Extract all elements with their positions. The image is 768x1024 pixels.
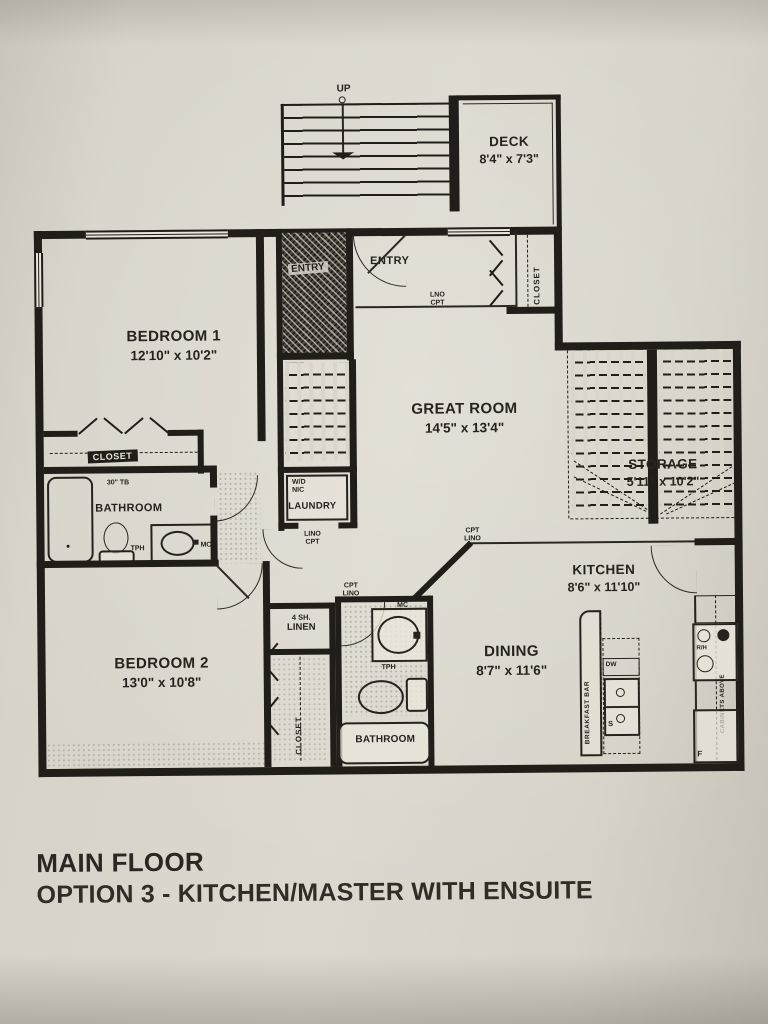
closet-side-line <box>515 231 518 311</box>
bathtub <box>47 477 94 563</box>
window <box>86 229 228 239</box>
chevron-door <box>79 410 121 434</box>
toilet-tank <box>406 678 428 712</box>
wall <box>265 602 335 609</box>
photo-shadow-top <box>0 0 768 46</box>
kitchen-dims: 8'6" x 11'10" <box>539 578 669 595</box>
door-arc <box>217 563 263 609</box>
floor-transition-line <box>471 540 697 544</box>
stair-arrow-start <box>339 96 346 103</box>
wall <box>349 359 357 471</box>
stairs-exterior <box>281 102 454 205</box>
dw-label: DW <box>606 661 617 669</box>
wall <box>350 466 358 526</box>
great-room-dims: 14'5" x 13'4" <box>384 418 544 437</box>
bedroom1-name: BEDROOM 1 <box>94 326 254 347</box>
floor-transition-label: CPT LINO <box>337 582 365 598</box>
faucet <box>194 540 199 545</box>
floor-texture <box>46 741 266 767</box>
room-label-bedroom2: BEDROOM 2 13'0" x 10'8" <box>82 653 242 691</box>
kitchen-name: KITCHEN <box>539 561 669 580</box>
room-label-bedroom1: BEDROOM 1 12'10" x 10'2" <box>94 326 254 364</box>
dining-dims: 8'7" x 11'6" <box>447 661 577 680</box>
storage-edge <box>567 350 569 518</box>
wall <box>346 228 354 360</box>
wd-label: W/D NIC <box>292 479 306 495</box>
dining-name: DINING <box>446 641 576 662</box>
fridge-label: F <box>697 749 702 758</box>
tph-label: TPH <box>131 545 145 553</box>
wall <box>210 516 217 564</box>
wall <box>338 522 357 528</box>
breakfast-bar-label: BREAKFAST BAR <box>583 634 591 744</box>
cpt-text: CPT <box>458 527 486 535</box>
wall <box>647 350 659 524</box>
floor-transition-label: LNO CPT <box>423 291 451 307</box>
burner <box>697 629 710 642</box>
wall <box>44 466 216 475</box>
room-label-great-room: GREAT ROOM 14'5" x 13'4" <box>384 399 544 437</box>
wall <box>277 352 354 360</box>
stair-up-label: UP <box>329 83 359 94</box>
vanity-sink <box>160 531 194 556</box>
stairs-storage-left <box>571 350 646 516</box>
cpt-text: CPT <box>423 300 451 308</box>
wall <box>44 431 78 437</box>
closet-dashed-line <box>527 235 529 307</box>
deck-dims: 8'4" x 7'3" <box>459 150 559 167</box>
storage-dims: 5'11" x 10'2" <box>588 473 738 491</box>
room-label-storage: STORAGE 5'11" x 10'2" <box>588 455 738 490</box>
room-label-bathroom-main: BATHROOM <box>95 502 162 515</box>
floor-transition-label: CPT LINO <box>458 527 486 543</box>
lino-text: LINO <box>298 531 326 539</box>
toilet <box>103 522 128 553</box>
burner <box>697 655 714 672</box>
floor-plan: UP DECK 8'4" x 7'3" ENTRY ENTRY CLOSET L… <box>0 0 768 1024</box>
plan-subtitle: OPTION 3 - KITCHEN/MASTER WITH ENSUITE <box>36 876 592 910</box>
wall <box>263 561 272 767</box>
storage-name: STORAGE <box>588 455 738 474</box>
closet-label: CLOSET <box>88 449 138 463</box>
linen-line2: LINEN <box>277 622 325 634</box>
nic-text: NIC <box>292 487 306 495</box>
deck-name: DECK <box>459 133 559 151</box>
bedroom2-dims: 13'0" x 10'8" <box>82 673 242 692</box>
chevron-door <box>489 241 515 275</box>
photo-of-floor-plan: UP DECK 8'4" x 7'3" ENTRY ENTRY CLOSET L… <box>0 0 768 1024</box>
wall <box>34 231 47 777</box>
closet-floor-texture <box>272 657 329 761</box>
photo-shadow-bottom <box>0 954 768 1024</box>
lino-text: LINO <box>337 590 365 598</box>
wall <box>506 306 561 313</box>
linen-line1: 4 SH. <box>277 613 325 622</box>
chevron-door <box>125 410 167 434</box>
bedroom2-name: BEDROOM 2 <box>82 653 242 674</box>
wall <box>554 226 563 350</box>
wall <box>695 538 743 545</box>
tub-drain <box>67 545 70 548</box>
room-label-entry-inner: ENTRY <box>370 255 409 267</box>
wall <box>265 648 335 655</box>
wd-text: W/D <box>292 479 306 487</box>
cpt-text: CPT <box>299 539 327 547</box>
linen-label: 4 SH. LINEN <box>277 613 325 634</box>
hood-control <box>717 629 729 641</box>
great-room-name: GREAT ROOM <box>384 399 544 420</box>
lino-text: LINO <box>458 535 486 543</box>
stairs-interior <box>285 362 350 461</box>
wall <box>733 341 745 771</box>
entry-hatch-floor <box>282 232 347 355</box>
room-label-deck: DECK 8'4" x 7'3" <box>459 133 559 168</box>
sink-divider <box>606 706 638 708</box>
window <box>34 253 43 307</box>
plan-title: MAIN FLOOR <box>36 847 204 879</box>
faucet <box>413 632 420 639</box>
tph-label: TPH <box>382 664 396 672</box>
closet-label: CLOSET <box>532 243 542 305</box>
lno-text: LNO <box>423 291 451 299</box>
sink-label: S <box>608 720 613 729</box>
room-label-dining: DINING 8'7" x 11'6" <box>446 641 576 679</box>
hall-floor-texture <box>218 471 261 563</box>
towel-bar-label: 30" TB <box>98 479 138 487</box>
chevron-door <box>489 271 515 305</box>
floor-transition-label: LINO CPT <box>298 531 326 547</box>
room-label-bathroom-ensuite: BATHROOM <box>346 734 424 746</box>
bedroom1-dims: 12'10" x 10'2" <box>94 346 254 365</box>
sink-drain <box>616 714 625 723</box>
wall <box>278 466 357 473</box>
window <box>448 227 510 237</box>
room-label-laundry: LAUNDRY <box>288 500 336 511</box>
wall <box>256 229 266 441</box>
room-label-kitchen: KITCHEN 8'6" x 11'10" <box>539 561 669 596</box>
counter <box>695 595 736 623</box>
angled-wall <box>412 541 473 601</box>
wall <box>37 559 219 568</box>
cpt-text: CPT <box>337 582 365 590</box>
range-hood-label: R/H <box>696 645 706 652</box>
sink-drain <box>616 688 625 697</box>
